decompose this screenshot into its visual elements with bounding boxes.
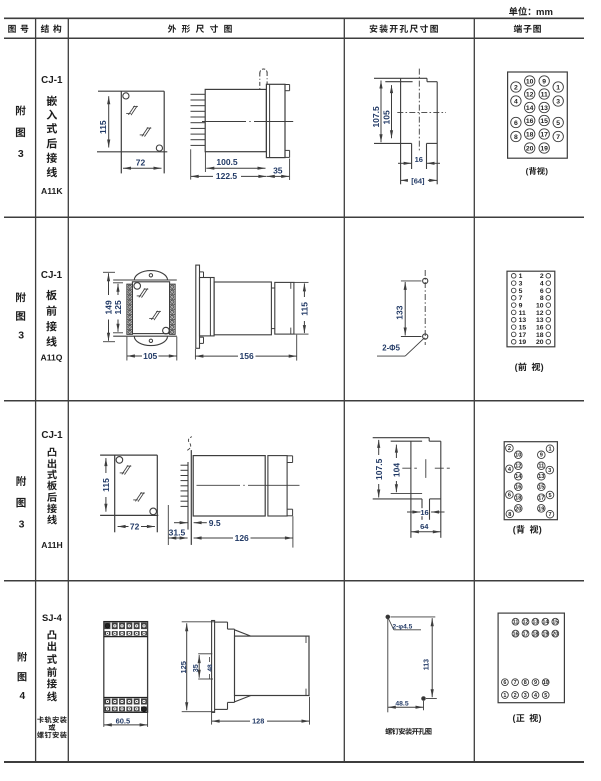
svg-text:13: 13 [519,317,527,324]
svg-text:11: 11 [519,310,526,317]
svg-text:48.5: 48.5 [395,700,408,707]
svg-text:19: 19 [542,631,548,637]
svg-text:3: 3 [519,281,523,288]
svg-text:125: 125 [113,300,123,314]
svg-text:8: 8 [508,512,511,518]
svg-text:105: 105 [381,110,391,124]
svg-text:9: 9 [540,453,543,459]
svg-text:5: 5 [548,493,551,499]
svg-text:11: 11 [541,91,548,98]
svg-text:18: 18 [536,332,544,339]
svg-text:72: 72 [136,158,146,168]
svg-text:13: 13 [536,317,544,324]
svg-text:14: 14 [515,474,522,480]
svg-text:8: 8 [524,680,527,686]
svg-text:149: 149 [103,300,113,314]
svg-text:14: 14 [526,105,534,112]
svg-text:): ) [541,362,544,372]
svg-text:4: 4 [540,281,544,288]
svg-text:18: 18 [526,131,534,138]
svg-text:17: 17 [523,631,529,637]
svg-text:104: 104 [391,463,401,477]
svg-text:8: 8 [540,295,544,302]
svg-text:113: 113 [424,659,431,670]
svg-text:2-φ4.5: 2-φ4.5 [393,623,413,630]
svg-text:3: 3 [18,148,24,160]
svg-text:CJ-1: CJ-1 [41,270,63,281]
svg-text:9.5: 9.5 [209,518,221,528]
svg-text:19: 19 [519,339,527,346]
svg-text:15: 15 [519,325,527,332]
svg-text:13: 13 [532,620,538,626]
svg-text:): ) [545,167,548,176]
svg-text:128: 128 [252,717,264,726]
svg-text:17: 17 [519,332,527,339]
svg-text:(: ( [526,167,529,176]
svg-text:15: 15 [540,118,548,125]
svg-text:6: 6 [503,680,506,686]
svg-text:12: 12 [536,310,544,317]
svg-text:10: 10 [536,303,544,310]
svg-text:16: 16 [536,325,544,332]
svg-text:7: 7 [548,512,551,518]
svg-text:14: 14 [542,620,548,626]
svg-text:): ) [539,524,542,534]
svg-text:10: 10 [526,78,534,85]
svg-text:18: 18 [532,631,538,637]
svg-text:16: 16 [415,155,423,164]
svg-text:125: 125 [179,661,188,674]
svg-text:48: 48 [207,664,214,672]
svg-text:12: 12 [523,620,529,626]
svg-text:31.5: 31.5 [169,527,186,537]
svg-text:5: 5 [544,693,547,699]
svg-text:10: 10 [543,680,549,686]
svg-text:A11H: A11H [41,540,63,550]
svg-text:mm: mm [536,7,553,18]
svg-text:16: 16 [515,485,521,491]
svg-text:CJ-1: CJ-1 [41,430,63,441]
svg-text:9: 9 [519,303,523,310]
svg-text:16: 16 [513,631,519,637]
svg-text:20: 20 [526,145,534,152]
svg-text:8: 8 [514,134,518,141]
svg-text:15: 15 [552,620,558,626]
svg-text:115: 115 [299,302,309,316]
svg-text:2: 2 [514,693,517,699]
svg-text:2: 2 [514,84,518,91]
svg-text:12: 12 [526,91,534,98]
svg-text:16: 16 [526,118,534,125]
svg-text:4: 4 [19,691,25,702]
svg-text:156: 156 [240,351,254,361]
svg-text:3: 3 [19,519,25,531]
svg-text:122.5: 122.5 [216,171,238,181]
svg-text:A11K: A11K [41,186,63,196]
svg-text:64: 64 [420,522,429,531]
svg-text:1: 1 [556,84,560,91]
svg-text:1: 1 [519,273,523,280]
svg-text:35: 35 [273,166,283,176]
svg-text:15: 15 [538,485,544,491]
svg-text:107.5: 107.5 [374,458,384,480]
svg-text:3: 3 [548,468,551,474]
svg-text:105: 105 [143,351,157,361]
svg-text:16: 16 [420,508,428,517]
svg-text:17: 17 [540,131,548,138]
svg-text:4: 4 [514,98,518,105]
svg-text:6: 6 [508,493,511,499]
svg-text:A11Q: A11Q [41,353,63,363]
svg-text:11: 11 [513,620,519,626]
svg-text:35: 35 [191,664,200,672]
svg-text:SJ-4: SJ-4 [42,612,63,623]
svg-text:12: 12 [515,464,521,470]
svg-text:107.5: 107.5 [371,106,381,128]
svg-text:(: ( [515,362,518,372]
svg-text:9: 9 [534,680,537,686]
svg-text:1: 1 [503,693,506,699]
svg-text:133: 133 [394,305,404,319]
svg-text:20: 20 [536,339,544,346]
svg-text:2: 2 [540,273,544,280]
svg-text:10: 10 [515,453,521,459]
svg-text:4: 4 [534,693,537,699]
svg-text:2-Φ5: 2-Φ5 [382,343,400,352]
svg-text:(: ( [513,524,516,534]
svg-text:19: 19 [538,506,544,512]
svg-text:1: 1 [548,447,551,453]
svg-text:20: 20 [552,631,558,637]
svg-text:): ) [539,713,542,723]
svg-text:18: 18 [515,496,521,502]
svg-text:CJ-1: CJ-1 [41,75,63,86]
svg-text:13: 13 [538,474,544,480]
svg-text:2: 2 [508,446,511,452]
svg-text:3: 3 [18,330,24,342]
svg-text:115: 115 [98,120,108,134]
svg-text:7: 7 [556,134,560,141]
svg-text:7: 7 [514,680,517,686]
svg-text:3: 3 [556,98,560,105]
svg-text:5: 5 [556,120,560,127]
svg-text:13: 13 [540,105,548,112]
svg-text:72: 72 [130,521,140,531]
svg-text:6: 6 [514,120,518,127]
svg-text:9: 9 [542,78,546,85]
svg-text:115: 115 [101,478,111,492]
svg-text:6: 6 [540,288,544,295]
svg-text:[64]: [64] [411,176,425,185]
svg-text:3: 3 [524,693,527,699]
svg-text:(: ( [513,713,516,723]
svg-text:5: 5 [519,288,523,295]
svg-text:17: 17 [538,496,544,502]
svg-text:7: 7 [519,295,523,302]
svg-text:19: 19 [540,145,548,152]
svg-text:20: 20 [515,506,521,512]
svg-text:126: 126 [235,533,249,543]
svg-text:60.5: 60.5 [116,717,131,726]
svg-text:11: 11 [538,464,544,470]
svg-text:100.5: 100.5 [216,157,238,167]
